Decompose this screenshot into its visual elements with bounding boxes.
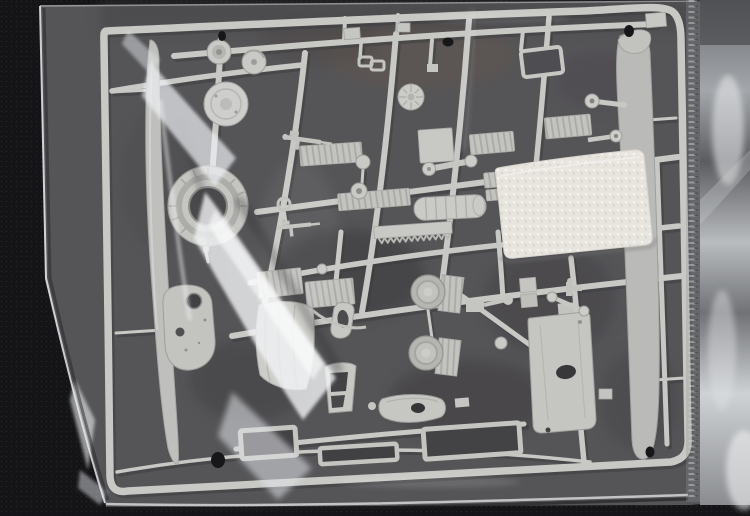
bag-crimped-seam <box>686 0 700 502</box>
bag-overlay <box>40 0 750 510</box>
foil-strip <box>700 0 750 505</box>
bag-foil-right <box>700 0 750 510</box>
photo-model-kit-sprue-in-bag: Unbuilt light-grey model kit sprue with … <box>0 0 750 516</box>
